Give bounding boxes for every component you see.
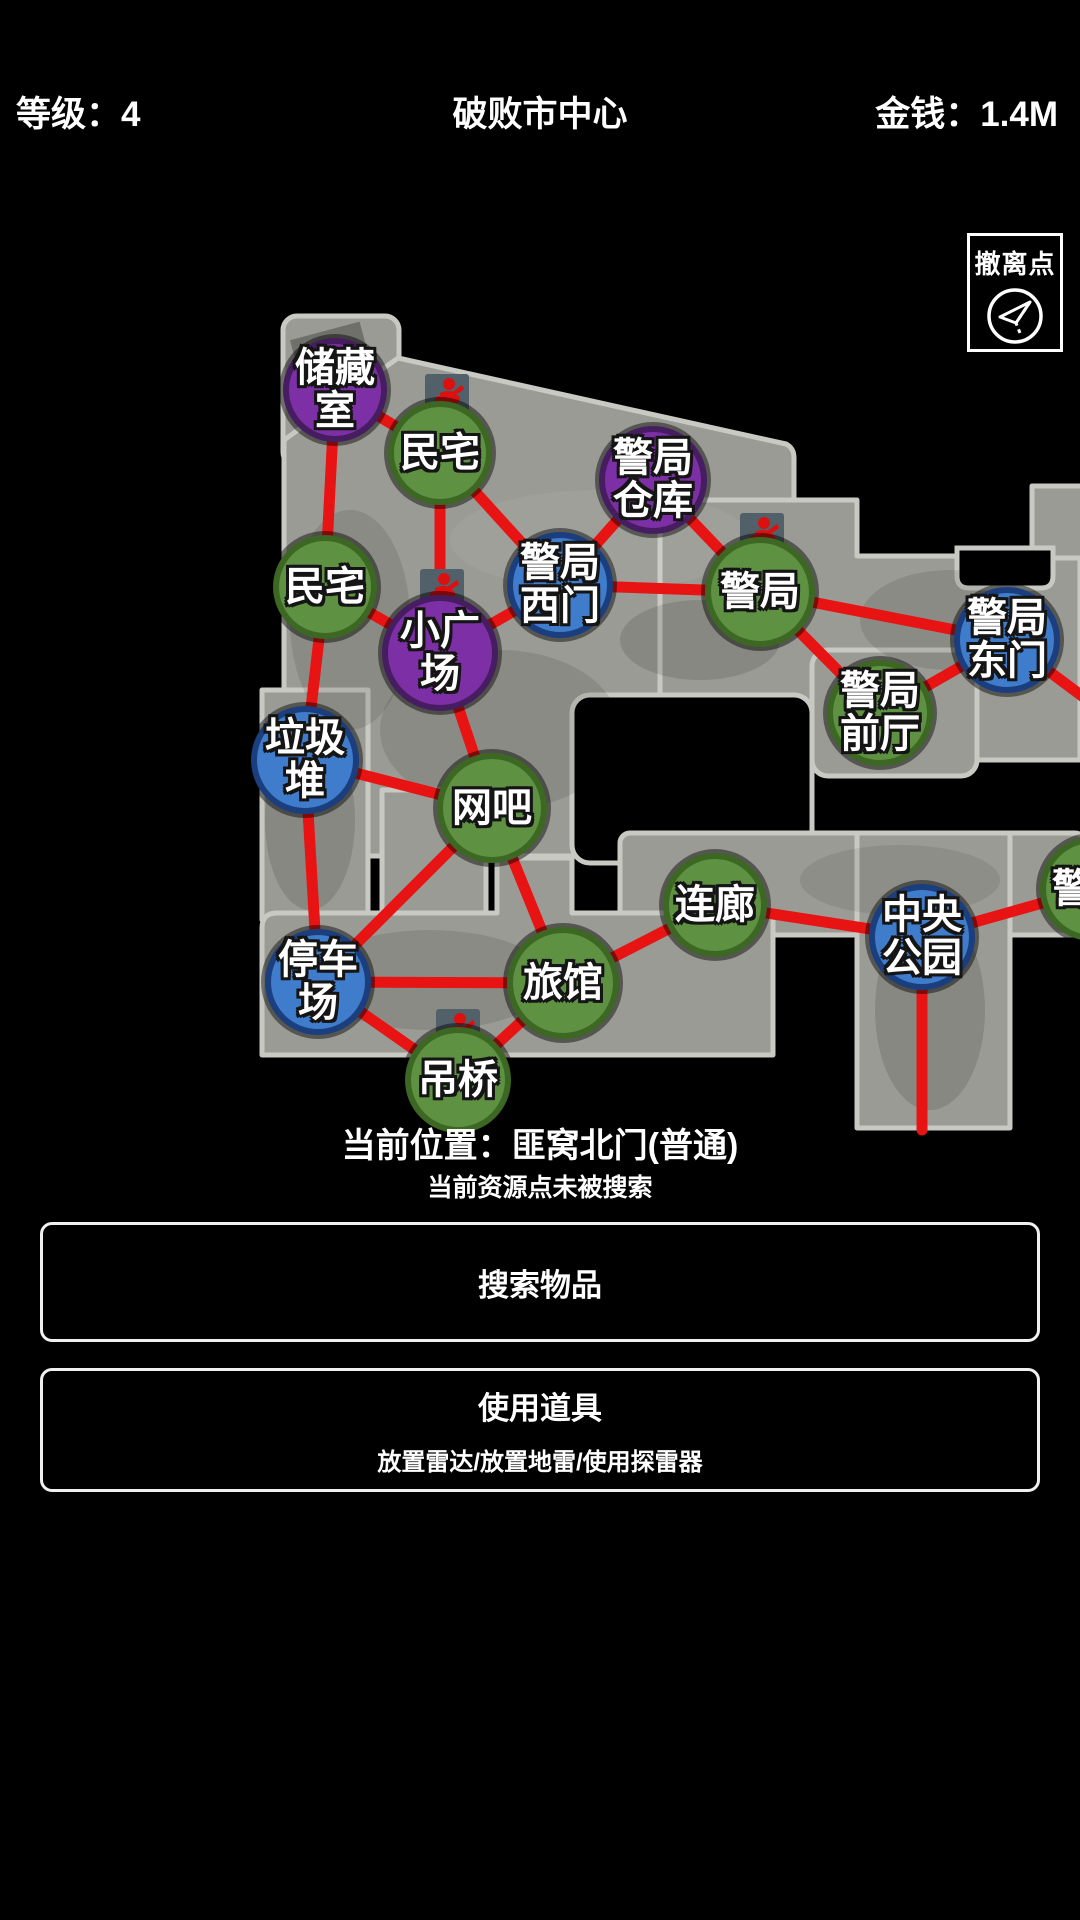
- map-node-label: 旅馆: [523, 962, 603, 1005]
- map-node-label: 停车场: [271, 939, 365, 1025]
- map-node-label: 网吧: [452, 787, 532, 830]
- map-node-cangku[interactable]: 警局仓库: [599, 426, 707, 534]
- map-node-minzhai1[interactable]: 民宅: [388, 401, 492, 505]
- map-node-ximen[interactable]: 警局西门: [507, 532, 613, 638]
- map-node-label: 警局: [1052, 868, 1080, 911]
- map-node-label: 吊桥: [418, 1059, 498, 1102]
- map-node-chucang[interactable]: 储藏室: [283, 338, 387, 442]
- map-node-gongyuan[interactable]: 中央公园: [869, 884, 975, 990]
- map-node-label: 民宅: [285, 566, 365, 609]
- map-node-laji[interactable]: 垃圾堆: [251, 706, 359, 814]
- evac-compass-icon: [986, 287, 1044, 345]
- map-node-minzhai2[interactable]: 民宅: [273, 535, 377, 639]
- map-node-label: 小广场: [388, 610, 492, 696]
- map-node-label: 警局: [720, 571, 800, 614]
- map-node-guangchang[interactable]: 小广场: [382, 595, 498, 711]
- evacuation-button[interactable]: 撤离点: [967, 233, 1063, 352]
- map-node-tingche[interactable]: 停车场: [265, 929, 371, 1035]
- use-item-subtitle: 放置雷达/放置地雷/使用探雷器: [377, 1442, 702, 1477]
- map-node-label: 警局前厅: [833, 670, 927, 756]
- map-node-label: 警局西门: [513, 542, 607, 628]
- map-node-label: 储藏室: [289, 347, 381, 433]
- map-node-label: 垃圾堆: [257, 717, 353, 803]
- use-item-title: 使用道具: [478, 1383, 602, 1428]
- map-node-lvguan[interactable]: 旅馆: [507, 927, 619, 1039]
- search-items-button[interactable]: 搜索物品: [40, 1222, 1040, 1342]
- map-node-label: 警局东门: [960, 597, 1054, 683]
- map-node-qianting[interactable]: 警局前厅: [827, 660, 933, 766]
- map-node-label: 民宅: [400, 432, 480, 475]
- evacuation-label: 撤离点: [974, 244, 1055, 281]
- resource-hint-text: 当前资源点未被搜索: [0, 1168, 1080, 1204]
- map-node-label: 中央公园: [875, 894, 969, 980]
- current-location-text: 当前位置：匪窝北门(普通): [0, 1118, 1080, 1167]
- use-item-button[interactable]: 使用道具 放置雷达/放置地雷/使用探雷器: [40, 1368, 1040, 1492]
- map-node-label: 连廊: [675, 884, 755, 927]
- map-node-lianlang[interactable]: 连廊: [663, 853, 767, 957]
- map-node-wangba[interactable]: 网吧: [437, 753, 547, 863]
- game-screen: 等级：4 破败市中心 金钱：1.4M: [0, 0, 1080, 1920]
- map-node-jingju[interactable]: 警局: [705, 537, 815, 647]
- map-node-dongmen[interactable]: 警局东门: [954, 587, 1060, 693]
- map-node-label: 警局仓库: [605, 437, 701, 523]
